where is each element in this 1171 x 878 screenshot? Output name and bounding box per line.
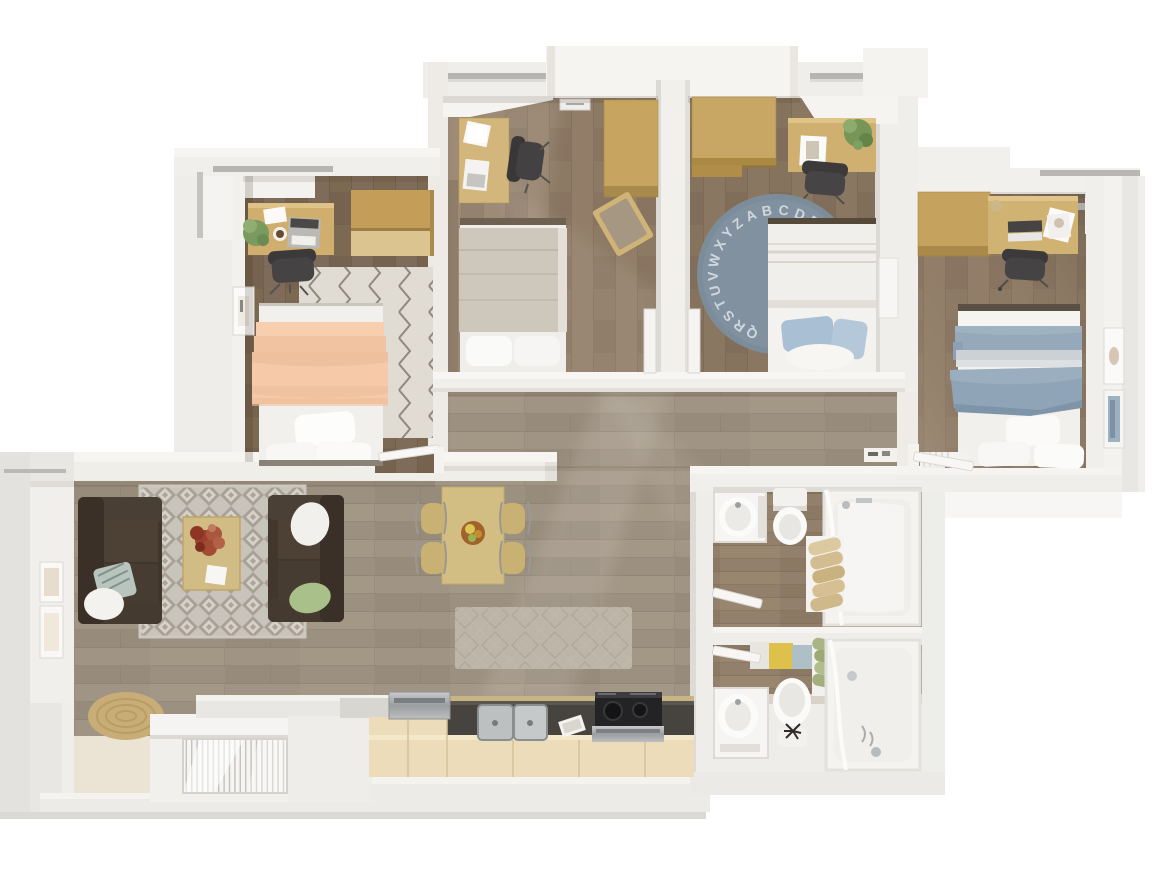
svg-text:V: V	[705, 271, 721, 282]
svg-text:C: C	[778, 202, 790, 219]
